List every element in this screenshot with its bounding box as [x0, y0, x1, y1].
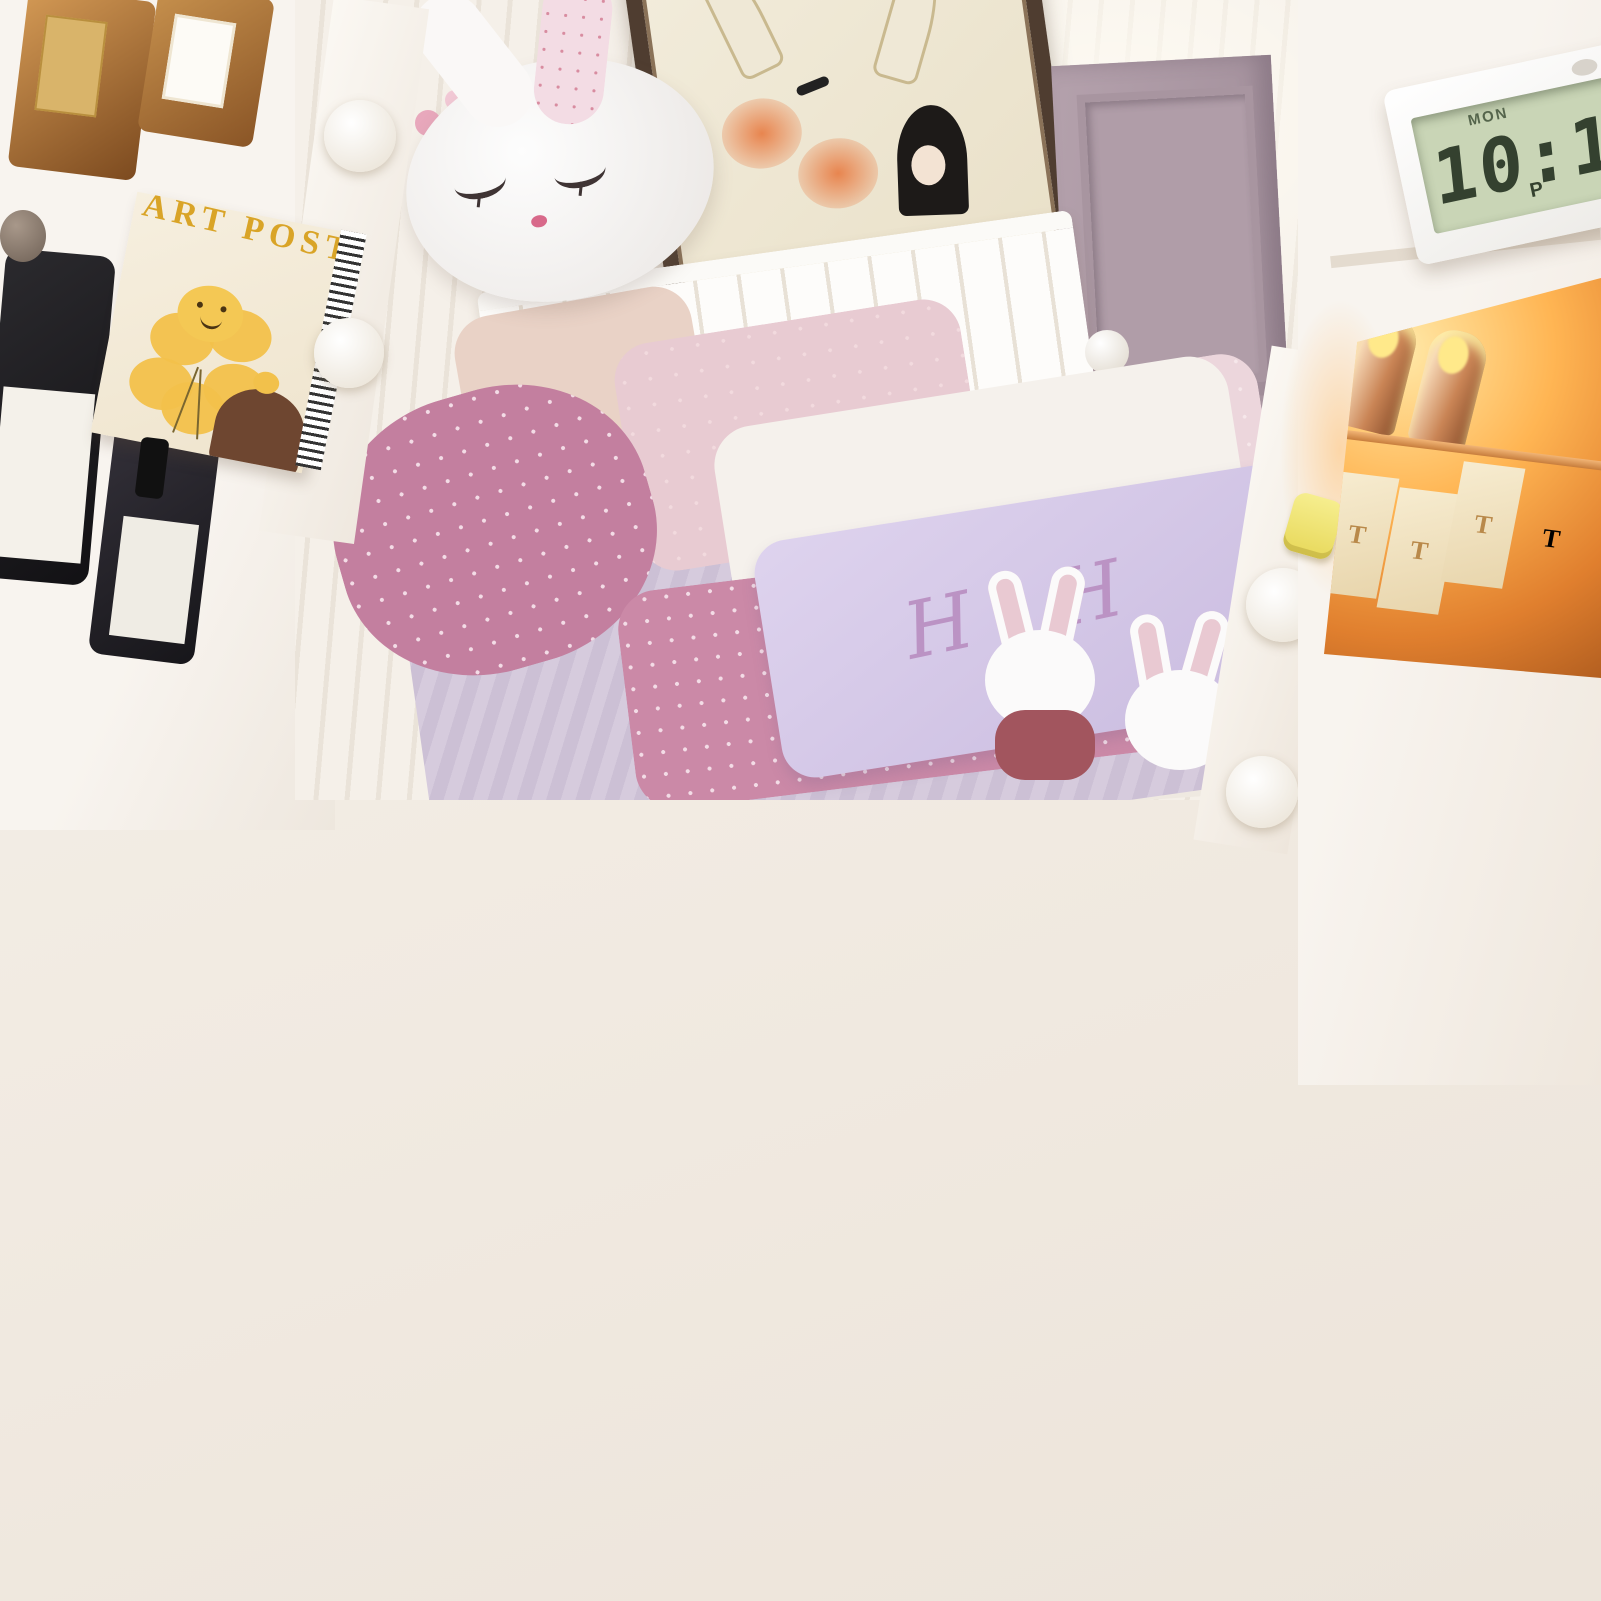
light-glare [1434, 333, 1472, 377]
flower-eye [220, 306, 227, 313]
product-image: ART POSTER 5 [0, 0, 1601, 1601]
clock-speaker-hole [1570, 57, 1599, 78]
pikachu-ear [871, 0, 950, 87]
bottle-label [0, 386, 95, 563]
pikachu-eye [795, 75, 830, 97]
clock-time: 10:10 [1429, 89, 1601, 223]
pikachu-cheek [717, 93, 806, 173]
lipstick-box-label: T [1472, 509, 1495, 541]
painting-figure-face [911, 145, 946, 186]
vanity-mirror: 5 24 ZX H H [295, 0, 1315, 800]
bottle-cap-sphere [0, 210, 46, 262]
vanity-bulb [324, 100, 396, 172]
flower-smile [199, 312, 223, 331]
bunny-eyelash [477, 193, 481, 207]
lipstick-box: T [1509, 475, 1594, 603]
painting-figure [895, 104, 969, 216]
vanity-bulb [1226, 756, 1298, 828]
bottle-label [109, 516, 199, 644]
perfume-label [34, 15, 107, 118]
pikachu-ear [690, 0, 787, 82]
perfume-label [162, 14, 237, 109]
bunny-eyelash [579, 182, 583, 196]
flower-eye [196, 301, 203, 308]
bunny-mouth [530, 214, 548, 229]
clock-lcd: MON 10:10 P [1410, 74, 1601, 234]
pikachu-cheek [794, 133, 883, 213]
lipstick-box-label: T [1346, 519, 1369, 551]
bunny-body [995, 710, 1095, 780]
vanity-bulb [314, 318, 384, 388]
lipstick-box-label: T [1540, 523, 1563, 555]
bunny-ear [530, 0, 615, 128]
lipstick-box-label: T [1408, 535, 1431, 567]
small-bunny-plush [965, 590, 1115, 780]
lipstick-bullet [1407, 325, 1492, 454]
